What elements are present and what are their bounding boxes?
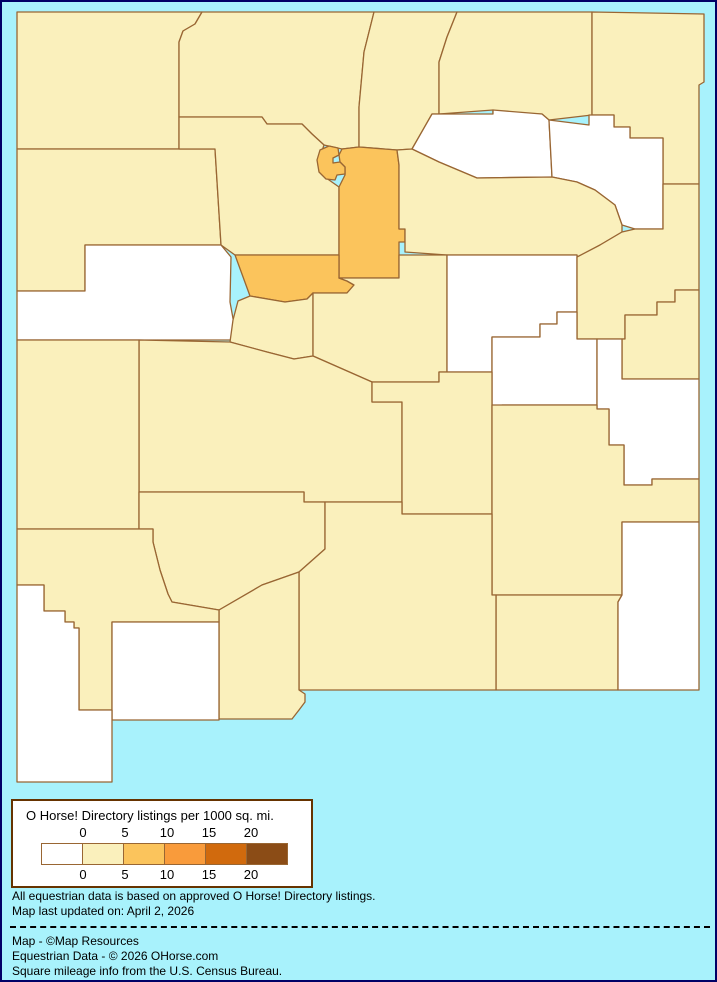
county-luna [112, 622, 219, 720]
legend-ticks-top-label-5: 5 [121, 825, 128, 840]
legend-ticks-top: 05101520 [13, 825, 311, 839]
county-santa-fe [339, 147, 405, 278]
credit-square-mileage: Square mileage info from the U.S. Census… [12, 964, 282, 978]
credit-map: Map - ©Map Resources [12, 934, 139, 948]
page-frame: O Horse! Directory listings per 1000 sq.… [0, 0, 717, 982]
legend-ticks-bottom-label-20: 20 [244, 867, 258, 882]
legend-ticks-bottom-label-0: 0 [79, 867, 86, 882]
legend-box: O Horse! Directory listings per 1000 sq.… [11, 799, 313, 888]
credit-equestrian-data: Equestrian Data - © 2026 OHorse.com [12, 949, 218, 963]
county-colfax [439, 12, 592, 120]
legend-ticks-top-label-0: 0 [79, 825, 86, 840]
note-last-updated: Map last updated on: April 2, 2026 [12, 904, 194, 918]
county-san-juan [17, 12, 202, 149]
note-data-source: All equestrian data is based on approved… [12, 889, 376, 903]
legend-ticks-bottom-label-10: 10 [160, 867, 174, 882]
legend-swatch-3 [164, 843, 206, 865]
legend-swatch-5 [246, 843, 288, 865]
legend-swatch-1 [82, 843, 124, 865]
legend-ticks-bottom: 05101520 [13, 867, 311, 881]
county-otero [299, 502, 496, 690]
county-eddy [496, 595, 622, 690]
dashed-separator [10, 926, 710, 928]
county-lea [618, 522, 699, 690]
legend-swatch-2 [123, 843, 165, 865]
legend-ticks-bottom-label-5: 5 [121, 867, 128, 882]
legend-swatch-0 [41, 843, 83, 865]
legend-title: O Horse! Directory listings per 1000 sq.… [26, 808, 274, 823]
county-catron [17, 340, 139, 529]
legend-ticks-bottom-label-15: 15 [202, 867, 216, 882]
legend-ticks-top-label-10: 10 [160, 825, 174, 840]
legend-ticks-top-label-15: 15 [202, 825, 216, 840]
legend-swatch-4 [205, 843, 247, 865]
legend-ticks-top-label-20: 20 [244, 825, 258, 840]
legend-color-ramp [41, 843, 288, 865]
